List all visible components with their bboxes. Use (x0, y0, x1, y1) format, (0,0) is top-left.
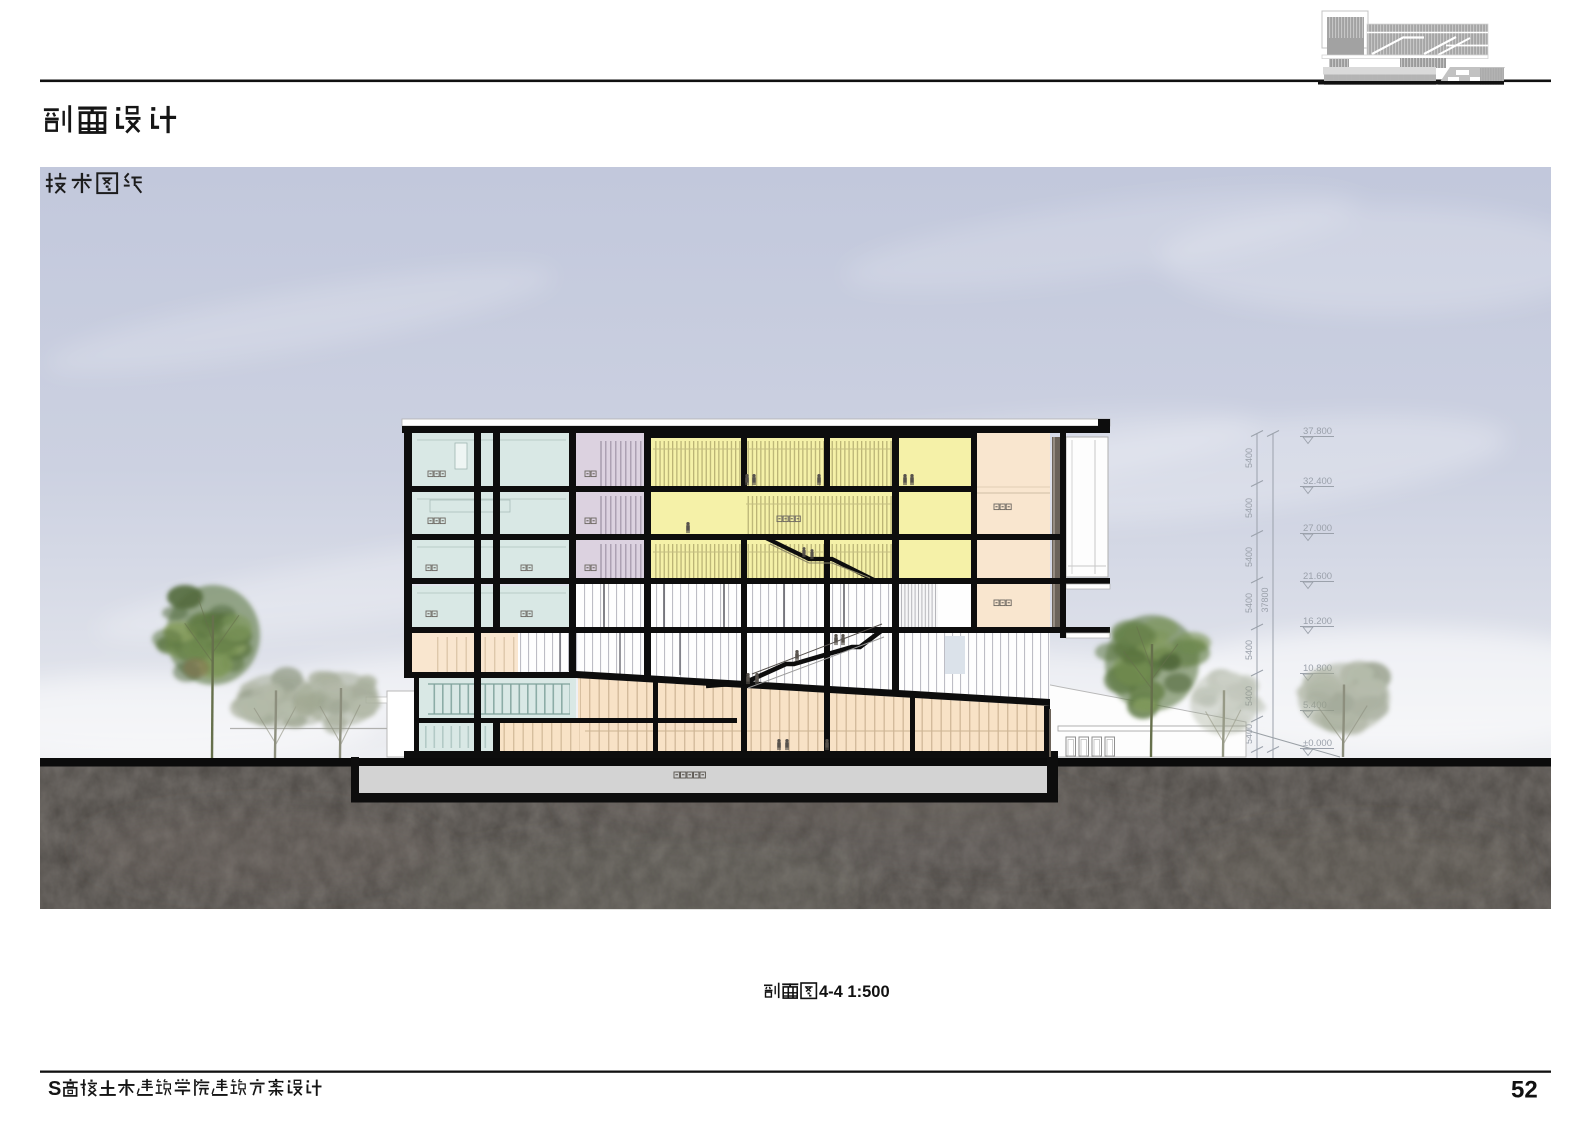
svg-text:5400: 5400 (1244, 593, 1254, 613)
svg-text:5400: 5400 (1244, 547, 1254, 567)
svg-text:16.200: 16.200 (1303, 616, 1332, 627)
svg-text:4-4 1:500: 4-4 1:500 (819, 983, 890, 1001)
svg-text:52: 52 (1511, 1077, 1538, 1104)
svg-text:S: S (48, 1078, 61, 1100)
svg-text:37.800: 37.800 (1303, 426, 1332, 437)
svg-text:5400: 5400 (1244, 448, 1254, 468)
svg-text:32.400: 32.400 (1303, 476, 1332, 487)
svg-text:27.000: 27.000 (1303, 523, 1332, 534)
svg-text:37800: 37800 (1260, 587, 1270, 612)
svg-text:5400: 5400 (1244, 498, 1254, 518)
svg-text:21.600: 21.600 (1303, 571, 1332, 582)
svg-text:5400: 5400 (1244, 640, 1254, 660)
